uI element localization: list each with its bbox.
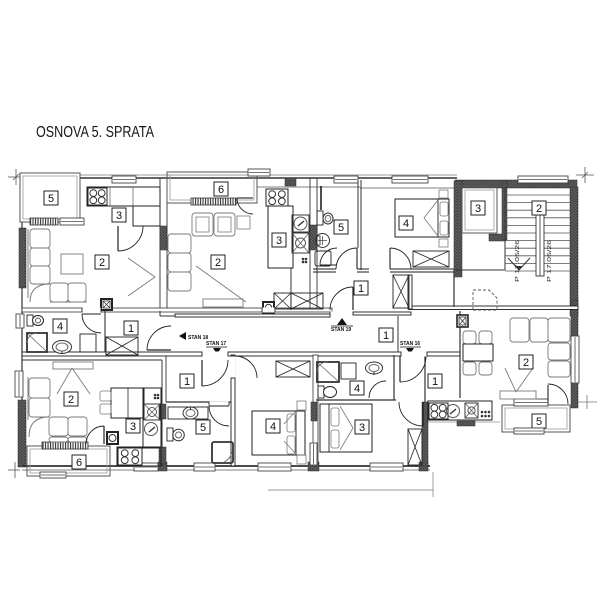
svg-text:3: 3 xyxy=(359,422,365,434)
svg-text:2: 2 xyxy=(523,357,529,369)
svg-text:5: 5 xyxy=(338,222,344,234)
svg-text:3: 3 xyxy=(276,235,282,247)
svg-text:6: 6 xyxy=(76,457,82,469)
svg-text:5: 5 xyxy=(48,193,54,205)
svg-text:P 17.05/26: P 17.05/26 xyxy=(547,240,553,282)
svg-text:OSNOVA 5. SPRATA: OSNOVA 5. SPRATA xyxy=(36,124,154,141)
svg-text:3: 3 xyxy=(116,210,122,222)
svg-text:4: 4 xyxy=(57,321,63,333)
svg-text:STAN 16: STAN 16 xyxy=(400,341,420,347)
svg-text:2: 2 xyxy=(68,394,74,406)
svg-text:STAN 19: STAN 19 xyxy=(331,327,351,333)
svg-text:1: 1 xyxy=(184,376,190,388)
svg-text:P 17.05/26: P 17.05/26 xyxy=(515,240,521,282)
svg-text:4: 4 xyxy=(403,218,409,230)
svg-text:4: 4 xyxy=(270,421,276,433)
svg-text:2: 2 xyxy=(99,257,105,269)
svg-text:4: 4 xyxy=(354,383,360,395)
svg-text:2: 2 xyxy=(536,203,542,215)
svg-text:STAN 17: STAN 17 xyxy=(206,341,226,347)
svg-text:3: 3 xyxy=(475,203,481,215)
svg-text:2: 2 xyxy=(215,257,221,269)
svg-text:1: 1 xyxy=(358,283,364,295)
svg-text:1: 1 xyxy=(383,330,389,342)
svg-text:1: 1 xyxy=(432,376,438,388)
svg-text:3: 3 xyxy=(130,421,136,433)
svg-text:5: 5 xyxy=(200,422,206,434)
svg-text:1: 1 xyxy=(128,323,134,335)
svg-text:5: 5 xyxy=(536,416,542,428)
svg-text:6: 6 xyxy=(218,184,224,196)
